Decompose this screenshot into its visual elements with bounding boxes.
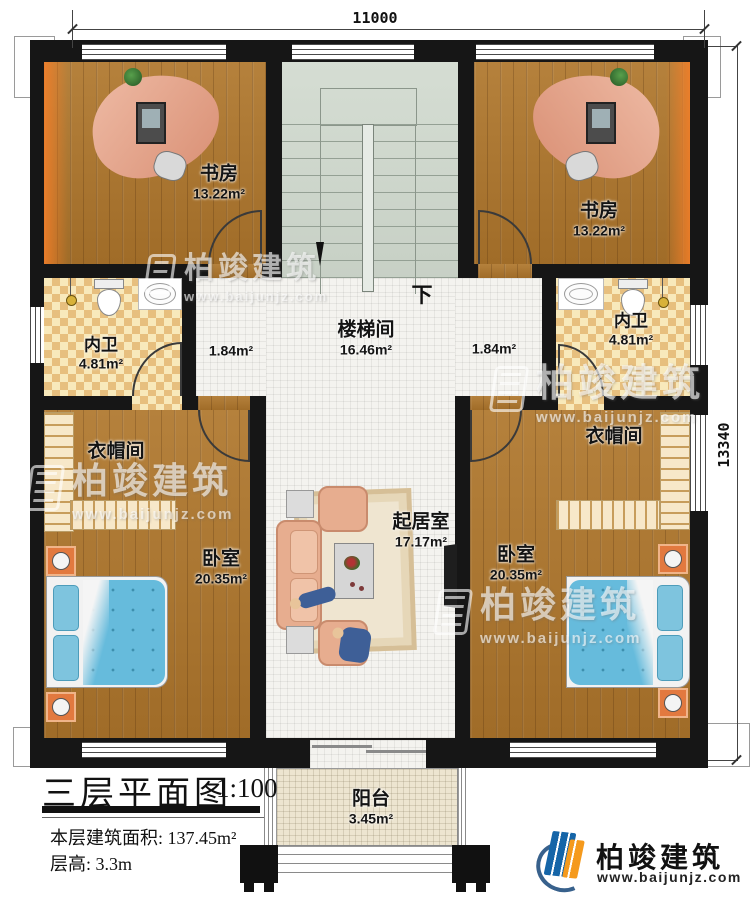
table-item	[350, 582, 355, 587]
brand-logo-icon	[536, 830, 590, 888]
sliding-door-panel	[312, 745, 372, 748]
window	[292, 44, 414, 60]
floor-area-value: 137.45m²	[168, 828, 237, 848]
room-label-bath-left: 内卫 4.81m²	[79, 336, 123, 373]
room-label-stairwell: 楼梯间 16.46m²	[337, 320, 394, 359]
floor-height-line: 层高: 3.3m	[50, 850, 132, 876]
title-rule-thick	[42, 806, 260, 813]
window	[690, 415, 708, 511]
watermark: 柏竣建筑 www.baijunjz.com	[436, 576, 641, 647]
plan-scale: 1:100	[216, 773, 278, 804]
watermark-logo-icon	[143, 254, 177, 294]
dim-width-label: 11000	[352, 9, 397, 27]
stair-stringer	[415, 124, 416, 294]
sofa	[276, 520, 322, 630]
watermark: 柏竣建筑 www.baijunjz.com	[28, 452, 233, 523]
watermark-logo-icon	[25, 465, 65, 511]
door-opening	[478, 264, 532, 278]
nightstand	[46, 692, 76, 722]
wardrobe-rack	[556, 500, 660, 530]
post-foot	[456, 883, 466, 892]
room-label-closet-right: 衣帽间	[585, 426, 642, 448]
window-glow	[666, 62, 690, 264]
door-opening	[198, 396, 250, 410]
nightstand	[658, 544, 688, 574]
table-item	[359, 586, 364, 591]
room-label-living: 起居室 17.17m²	[392, 512, 449, 551]
pull-knob	[658, 297, 669, 308]
room-label-bedroom-left: 卧室 20.35m²	[195, 549, 247, 588]
balcony-rail-bottom	[276, 845, 457, 881]
pull-knob	[66, 295, 77, 306]
pillow	[657, 635, 683, 681]
window-glow	[44, 62, 68, 264]
window	[510, 742, 656, 758]
bed-left	[46, 576, 168, 688]
plant	[610, 68, 628, 86]
dim-line-right	[737, 46, 738, 761]
toilet	[94, 279, 124, 289]
room-label-study-right: 书房 13.22m²	[573, 201, 625, 240]
dim-line-top	[72, 29, 705, 30]
person-figure	[338, 626, 372, 664]
post-foot	[244, 883, 254, 892]
computer-monitor	[136, 102, 166, 144]
sliding-door-panel	[366, 750, 426, 753]
corner-table	[286, 490, 314, 518]
title-rule-thin	[42, 817, 264, 818]
window	[82, 742, 226, 758]
window	[30, 307, 44, 363]
room-label-balcony: 阳台 3.45m²	[349, 789, 393, 828]
balcony-rail-right	[457, 768, 469, 845]
pillow	[53, 585, 79, 631]
sink	[564, 283, 598, 305]
floor-height-value: 3.3m	[96, 854, 133, 874]
dim-height-label: 13340	[715, 422, 733, 467]
corner-table	[286, 626, 314, 654]
floor-area-label: 本层建筑面积:	[50, 828, 163, 848]
balcony-post-right	[452, 845, 490, 883]
area-label-corridor-left: 1.84m²	[209, 343, 253, 360]
window	[476, 44, 654, 60]
pull-cord	[662, 278, 663, 298]
floor-area-line: 本层建筑面积: 137.45m²	[50, 824, 236, 850]
stair-handrail	[362, 124, 374, 292]
nightstand	[658, 688, 688, 718]
computer-monitor	[586, 102, 616, 144]
room-label-study-left: 书房 13.22m²	[193, 164, 245, 203]
window	[82, 44, 226, 60]
room-label-bath-right: 内卫 4.81m²	[609, 312, 653, 349]
plant	[124, 68, 142, 86]
post-foot	[264, 883, 274, 892]
stair-landing	[320, 88, 417, 126]
watermark-logo-icon	[433, 589, 473, 635]
armchair	[318, 486, 368, 532]
door-opening	[132, 396, 182, 410]
toilet	[618, 279, 648, 289]
watermark-logo-icon	[489, 366, 529, 412]
sheet-fold	[83, 580, 109, 685]
floor-height-label: 层高:	[50, 854, 91, 874]
pillow	[657, 585, 683, 631]
flower-vase	[344, 556, 360, 570]
balcony-post-left	[240, 845, 278, 883]
watermark: 柏竣建筑 www.baijunjz.com	[146, 243, 328, 304]
wardrobe-rack	[660, 412, 690, 530]
coffee-table	[334, 543, 374, 599]
pull-cord	[70, 278, 71, 296]
sofa-cushion	[290, 530, 318, 574]
nightstand	[46, 546, 76, 576]
brand-website: www.baijunjz.com	[597, 869, 742, 885]
floor-plan-canvas: 11000 13340	[0, 0, 750, 901]
watermark: 柏竣建筑 www.baijunjz.com	[492, 352, 704, 426]
desk-group-right	[528, 68, 660, 186]
post-foot	[476, 883, 486, 892]
stair-down-label: 下	[412, 279, 433, 309]
pillow	[53, 635, 79, 681]
